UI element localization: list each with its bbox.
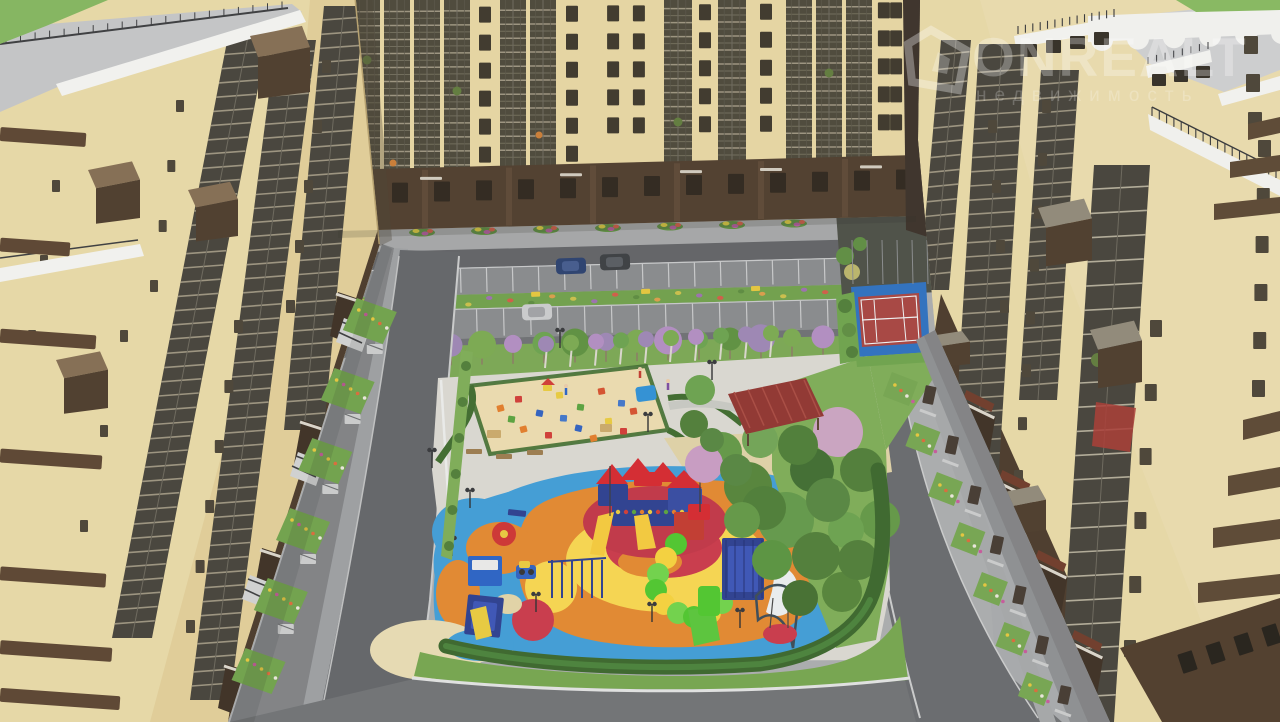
svg-text:недвижимость: недвижимость	[976, 85, 1200, 106]
svg-text:ONREALT: ONREALT	[972, 26, 1248, 88]
